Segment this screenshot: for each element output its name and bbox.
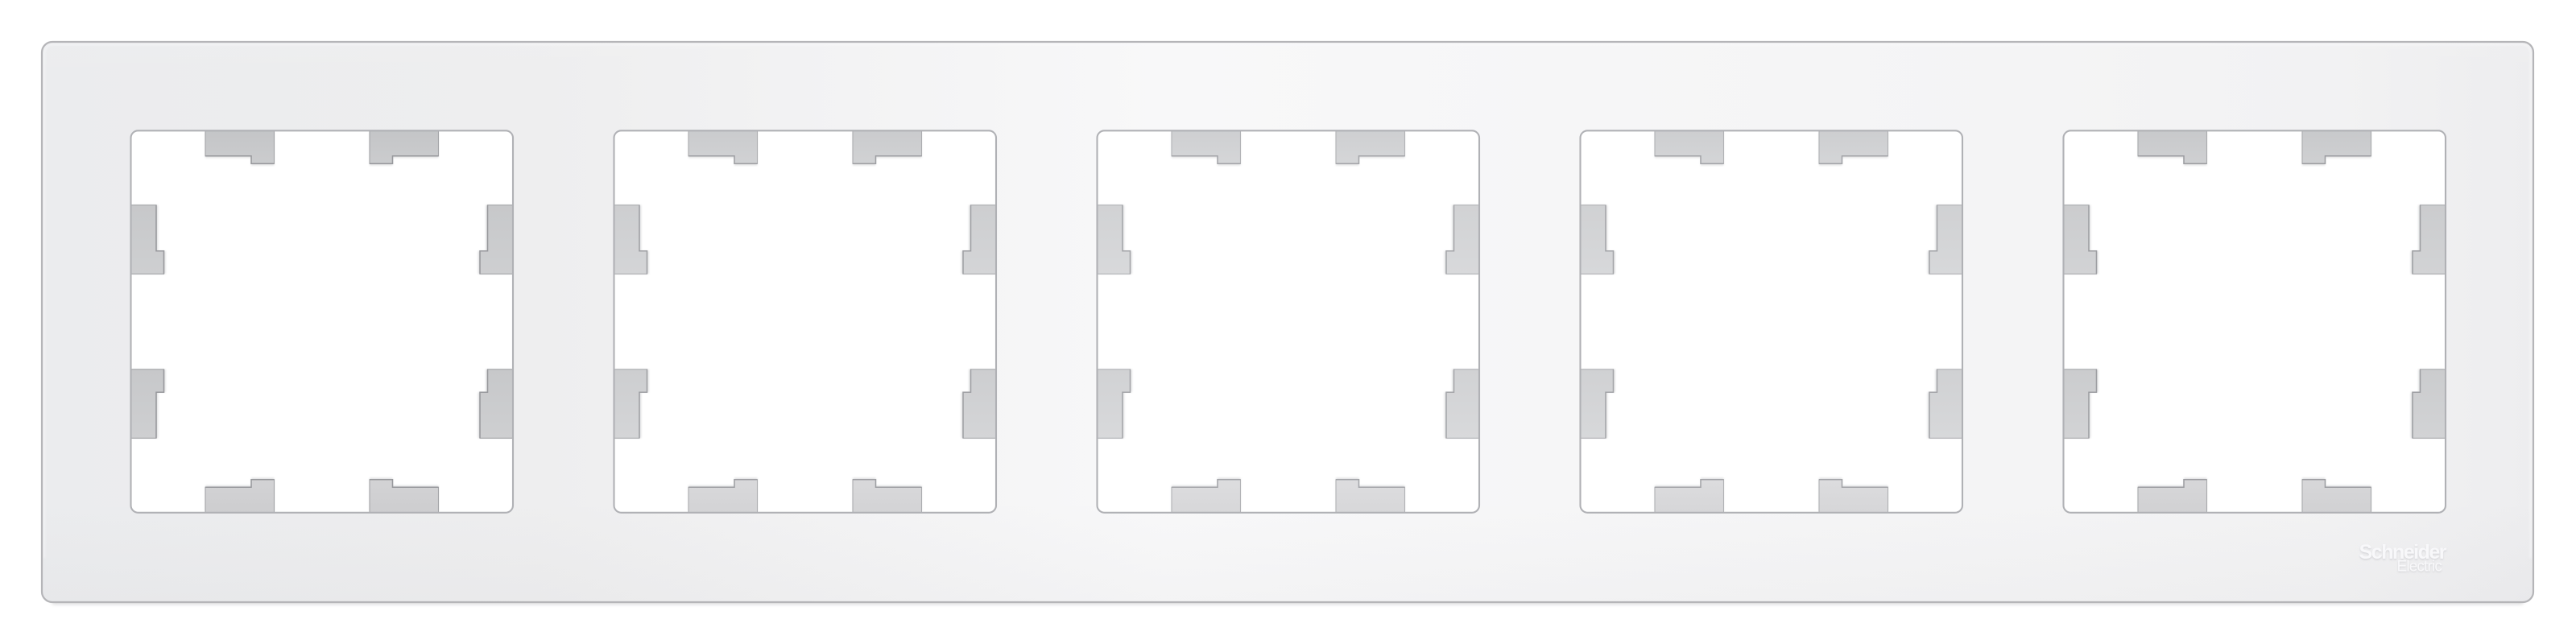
svg-text:Electric: Electric <box>2397 559 2442 576</box>
